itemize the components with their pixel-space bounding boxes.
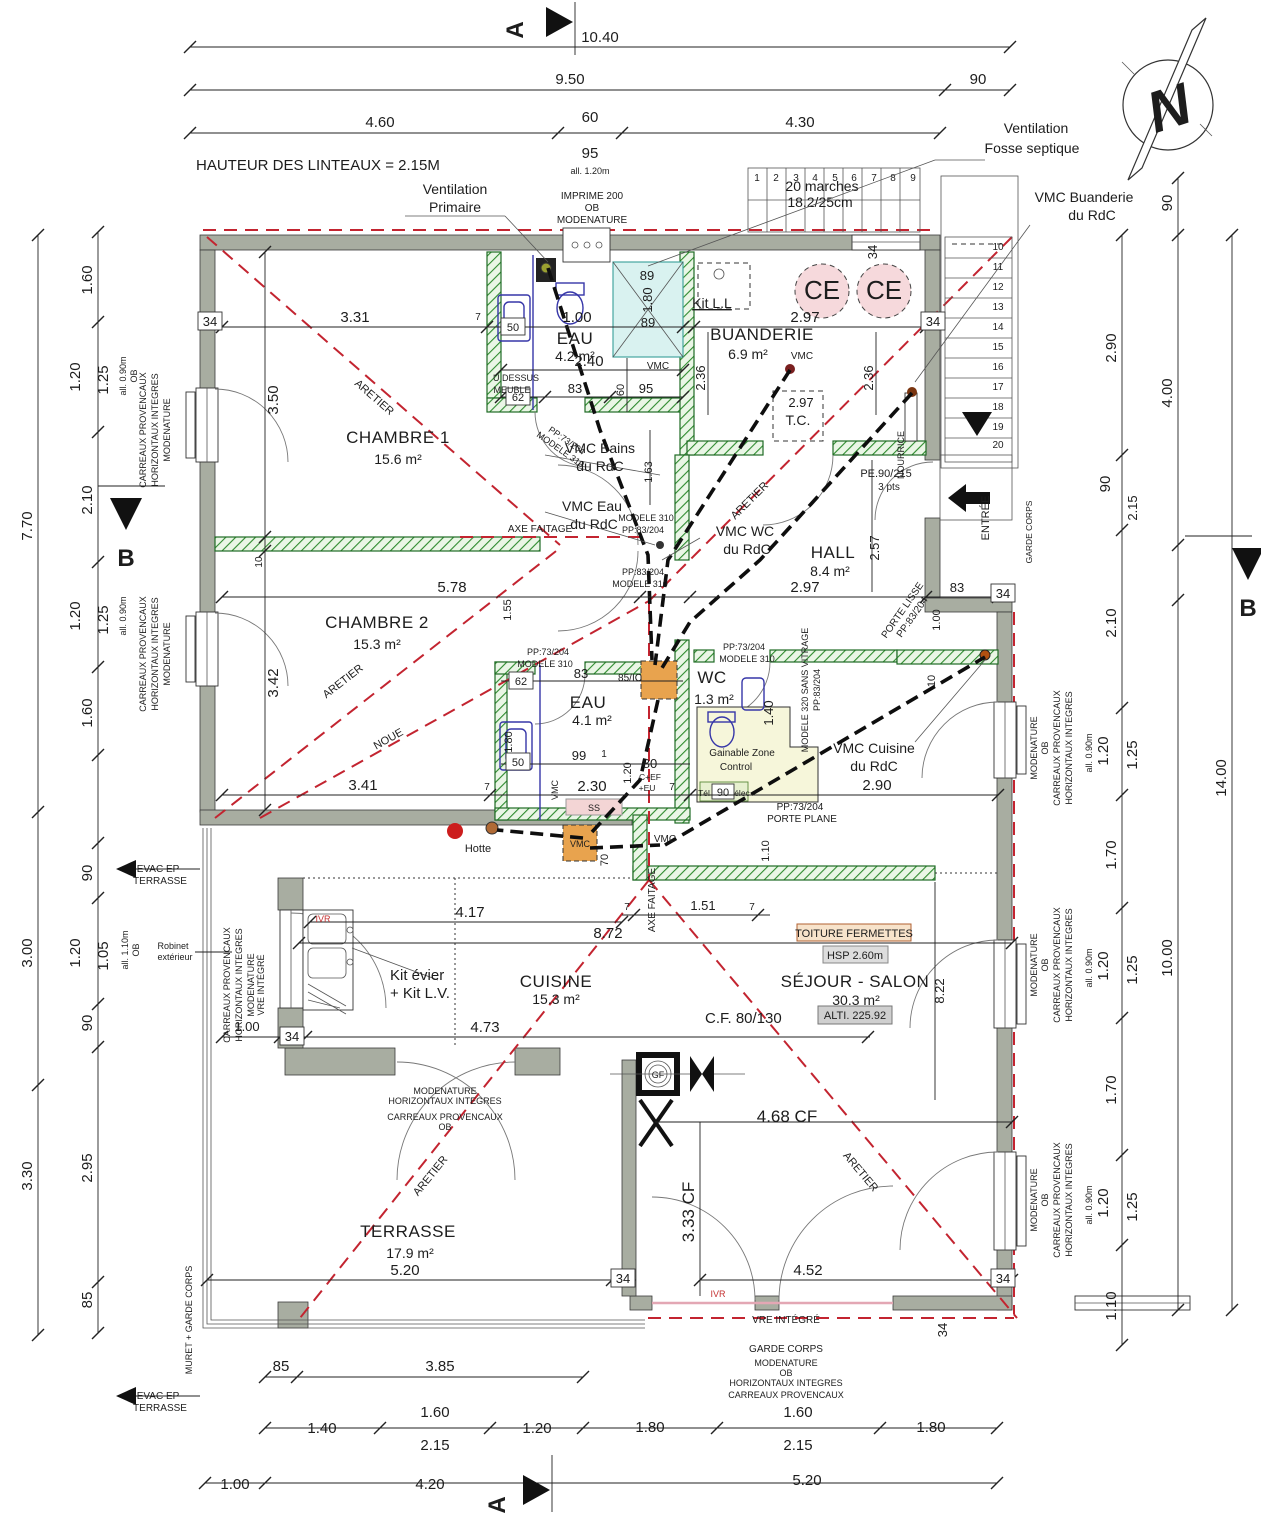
finish-note: OB [779, 1368, 792, 1378]
finish-note: CARREAUX PROVENCAUX [387, 1112, 503, 1122]
vmc-point: VMC [647, 361, 669, 372]
dim: 1.60 [79, 698, 96, 727]
porte-ref: MODELE 310 [719, 654, 775, 664]
vre-integre-label: VRE INTÉGRÉ [752, 1313, 820, 1326]
evac-ep-note: TERRASSE [133, 876, 187, 887]
section-a-top-label: A [502, 21, 529, 38]
dim: 10 [254, 556, 265, 568]
nourrice-label: NOURRICE [896, 431, 906, 479]
dim: 1.40 [761, 700, 776, 725]
sill-height: all. 1.20m [570, 166, 609, 176]
finish-note: CARREAUX PROVENCAUX [138, 372, 148, 488]
finish-note: HORIZONTAUX INTEGRES [1064, 908, 1074, 1021]
finish-note: HORIZONTAUX INTEGRES [1064, 1143, 1074, 1256]
porte-ref: PP:73/204 [723, 642, 765, 652]
dim: 2.36 [693, 365, 708, 390]
dim: 1.20 [1095, 1188, 1112, 1217]
callout-vmc-buanderie: du RdC [1068, 207, 1115, 223]
section-b-right-label: B [1239, 595, 1256, 622]
reseau-cef: C+EF [639, 772, 661, 782]
section-a-top-arrow-icon [546, 7, 573, 37]
callout-vmc-eau: du RdC [570, 516, 617, 532]
finish-note: CARREAUX PROVENCAUX [1052, 690, 1062, 806]
dim: 1.70 [1103, 1075, 1120, 1104]
dim: 2.57 [867, 535, 882, 560]
kit-lave-vaisselle: + Kit L.V. [390, 985, 450, 1002]
porte-entree-pts: 3 pts [878, 482, 900, 493]
room-terrasse-name: TERRASSE [360, 1222, 456, 1241]
conduit-fumee-ref: C.F. 80/130 [705, 1010, 782, 1027]
robinet-note: extérieur [157, 952, 192, 962]
dim: 7 [749, 902, 755, 913]
evac-ep-note: EVAC EP [137, 864, 180, 875]
dim: 1.25 [1124, 740, 1141, 769]
dim: 1.20 [622, 762, 634, 783]
callout-imprime: MODENATURE [557, 215, 628, 226]
finish-note: MODENATURE [413, 1086, 476, 1096]
dim: 1.25 [1124, 955, 1141, 984]
dim: 4.20 [415, 1476, 444, 1493]
dim: 99 [572, 748, 586, 763]
noue-label: NOUE [372, 726, 406, 752]
dim-cf: 3.33 CF [679, 1182, 698, 1242]
dim: 89 [640, 268, 654, 283]
callout-imprime: IMPRIME 200 [561, 191, 624, 202]
dim: 85/IC [618, 673, 642, 684]
wall-thickness: 34 [616, 1271, 630, 1286]
finish-note: MODENATURE [1029, 716, 1039, 779]
stair-step-14: 14 [992, 322, 1004, 333]
dim: 3.42 [265, 668, 282, 697]
sill-height: all. 1.10m [120, 930, 130, 969]
dim: 2.97 [790, 579, 819, 596]
chauffe-eau-2: CE [866, 275, 902, 305]
conduit-gf: GF [652, 1070, 665, 1080]
dim: 95 [582, 145, 599, 162]
finish-note: OB [438, 1122, 451, 1132]
callout-ventilation-primaire: Primaire [429, 199, 481, 215]
dim: 4.17 [455, 904, 484, 921]
staircase-right: 10 11 12 13 14 15 16 17 18 19 20 [941, 176, 1018, 468]
dim: 3.50 [265, 385, 282, 414]
stair-step-1: 1 [754, 173, 760, 184]
reseau-eu: +EU [639, 783, 656, 793]
sill-height: all. 0.90m [1084, 733, 1094, 772]
dim: 2.90 [862, 777, 891, 794]
toiture-fermettes-tag: TOITURE FERMETTES [795, 928, 913, 940]
room-cuisine-name: CUISINE [520, 972, 592, 991]
dim: 7.70 [19, 511, 36, 540]
dim: 1.00 [562, 309, 591, 326]
dim: 4.00 [1159, 378, 1176, 407]
dim: 83 [574, 666, 588, 681]
evac-ep-note: EVAC EP [137, 1391, 180, 1402]
dim: 60 [615, 384, 627, 396]
finish-note: HORIZONTAUX INTEGRES [150, 373, 160, 486]
ss-label: SS [588, 803, 600, 813]
dim: 95 [639, 381, 653, 396]
section-b-right-arrow-icon [1232, 548, 1261, 580]
room-eau-haut-name: EAU [557, 329, 593, 348]
callout-vmc-wc: VMC WC [716, 523, 774, 539]
wall-thickness: 34 [996, 586, 1010, 601]
vmc-point: VMC [570, 839, 591, 849]
sill-height: all. 0.90m [1084, 948, 1094, 987]
dim: 3.30 [19, 1161, 36, 1190]
dim: 89 [641, 315, 655, 330]
dim: 1.05 [95, 941, 112, 970]
room-eau-bas-area: 4.1 m² [572, 712, 612, 728]
dim: 1.20 [67, 362, 84, 391]
stair-step-12: 12 [992, 282, 1004, 293]
dim: 83 [950, 580, 964, 595]
dim: 4.52 [793, 1262, 822, 1279]
dim: 1.80 [503, 731, 515, 752]
aretier-label: ARETIER [411, 1154, 450, 1199]
dim: 1.60 [79, 265, 96, 294]
dim: 2.15 [420, 1437, 449, 1454]
dim: 70 [599, 854, 611, 866]
dim: 1.00 [931, 609, 943, 630]
finish: OB [131, 943, 141, 956]
room-hall-name: HALL [811, 543, 856, 562]
vmc-duct-box-1 [641, 661, 677, 699]
porte-ref: PP:83/204 [622, 567, 664, 577]
stair-step-13: 13 [992, 302, 1004, 313]
finish-note: MODENATURE [1029, 933, 1039, 996]
stair-step-19: 19 [992, 422, 1004, 433]
finish-note: HORIZONTAUX INTEGRES [234, 928, 244, 1041]
floor-plan-canvas: 1 2 3 4 5 6 7 8 9 20 marches 18.2/25cm 1… [0, 0, 1261, 1518]
dim: 1.10 [760, 840, 772, 861]
finish-note: CARREAUX PROVENCAUX [138, 596, 148, 712]
hsp-tag: HSP 2.60m [827, 950, 883, 962]
finish-note: MODENATURE [1029, 1168, 1039, 1231]
wall-thickness: 34 [203, 314, 217, 329]
room-tc-label: T.C. [786, 412, 811, 428]
roof-overhang-lines [203, 230, 1014, 1318]
dim: 3.00 [19, 938, 36, 967]
aretier-label: ARETIER [729, 480, 771, 522]
dim: 1.60 [783, 1404, 812, 1421]
vmc-point: VMC [654, 834, 676, 845]
dim: 1.60 [420, 1404, 449, 1421]
dim: 1 [601, 749, 607, 760]
dim-overall-width: 10.40 [581, 29, 619, 46]
dim: 83 [568, 381, 582, 396]
section-b-left-arrow-icon [110, 498, 142, 530]
vmc-point: VMC [550, 780, 560, 801]
stair-step-15: 15 [992, 342, 1004, 353]
garde-corps-stairs: GARDE CORPS [1024, 500, 1034, 563]
finish-note: HORIZONTAUX INTEGRES [1064, 691, 1074, 804]
staircase-top: 1 2 3 4 5 6 7 8 9 20 marches 18.2/25cm [748, 168, 920, 232]
dim-cf: 4.68 CF [757, 1107, 817, 1126]
dim: 80 [643, 756, 657, 771]
room-wc-name: WC [697, 668, 726, 687]
volet-ivr: IVR [315, 914, 331, 924]
volet-ivr: IVR [710, 1289, 726, 1299]
section-b-left-label: B [117, 545, 134, 572]
room-terrasse-area: 17.9 m² [386, 1245, 434, 1261]
section-a-bottom-label: A [484, 1496, 511, 1513]
dim: 10 [926, 675, 938, 687]
finish: OB [129, 369, 139, 382]
dim: 1.20 [522, 1420, 551, 1437]
door-width: 90 [717, 787, 729, 799]
dim: 2.10 [79, 485, 96, 514]
stair-step-9: 9 [910, 173, 916, 184]
callout-fosse-septique: Fosse septique [985, 140, 1080, 156]
callout-vmc-cuisine: VMC Cuisine [833, 740, 915, 756]
room-eau-bas-name: EAU [570, 693, 606, 712]
dim: 2.90 [1103, 333, 1120, 362]
entry-arrow-icon [948, 484, 966, 512]
dim: 90 [970, 71, 987, 88]
room-chambre2-area: 15.3 m² [353, 636, 401, 652]
dim: 2.95 [79, 1153, 96, 1182]
robinet-note: Robinet [157, 941, 189, 951]
axe-faitage-label: AXE FAITAGE [647, 868, 658, 933]
stair-step-17: 17 [992, 382, 1004, 393]
room-hall-area: 8.4 m² [810, 563, 850, 579]
callout-vmc-eau: VMC Eau [562, 498, 622, 514]
lintel-note: HAUTEUR DES LINTEAUX = 2.15M [196, 157, 440, 174]
dim: 1.70 [1103, 840, 1120, 869]
dim: 90 [79, 865, 96, 882]
axe-faitage-label: AXE FAITAGE [508, 524, 573, 535]
dim: 90 [1159, 195, 1176, 212]
dim: 2.15 [783, 1437, 812, 1454]
dim: 90 [1097, 476, 1114, 493]
room-chambre2-name: CHAMBRE 2 [325, 613, 429, 632]
finish-note: MODENATURE [754, 1358, 817, 1368]
dim: 7 [669, 782, 675, 793]
meuble-width: 62 [515, 676, 527, 688]
stair-step-10: 10 [992, 242, 1004, 253]
sill-height: all. 0.90m [118, 596, 128, 635]
dim: 4.73 [470, 1019, 499, 1036]
finish-note: HORIZONTAUX INTEGRES [729, 1378, 842, 1388]
dim: 1.00 [220, 1476, 249, 1493]
room-sejour-name: SÉJOUR - SALON [781, 972, 930, 991]
stair-step-2: 2 [773, 173, 779, 184]
callout-vmc-wc: du RdC [723, 541, 770, 557]
room-cuisine-area: 15.3 m² [532, 991, 580, 1007]
porte-ref: MODELE 310 [618, 513, 674, 523]
dim: 3.31 [340, 309, 369, 326]
wall-thickness: 34 [996, 1271, 1010, 1286]
callout-vmc-cuisine: du RdC [850, 758, 897, 774]
dim: 14.00 [1213, 759, 1230, 797]
dim: 1.20 [67, 601, 84, 630]
section-a-bottom-arrow-icon [523, 1475, 550, 1505]
callout-vmc-buanderie: VMC Buanderie [1035, 189, 1134, 205]
dim: 7 [624, 902, 630, 913]
finish-note: MODENATURE [162, 622, 172, 685]
dim: 5.20 [390, 1262, 419, 1279]
room-buanderie-name: BUANDERIE [710, 325, 814, 344]
aretier-label: ARETIER [840, 1150, 880, 1194]
dim: 1.20 [67, 938, 84, 967]
dim: 1.20 [1095, 736, 1112, 765]
dim: 4.30 [785, 114, 814, 131]
vr-integre-label: VRE INTÉGRÉ [256, 954, 266, 1015]
dim: 9.50 [555, 71, 584, 88]
dim: 2.97 [790, 309, 819, 326]
meuble-note: MEUBLE [493, 385, 530, 395]
porte-plane-ref: PORTE PLANE [767, 814, 837, 825]
dim: 1.20 [1095, 951, 1112, 980]
garde-corps-label: GARDE CORPS [749, 1344, 823, 1355]
dim: 2.36 [861, 365, 876, 390]
dim: 85 [79, 1292, 96, 1309]
dim: 1.10 [1103, 1291, 1120, 1320]
dim: 1.40 [307, 1420, 336, 1437]
porte-plane-ref: PP:73/204 [777, 802, 824, 813]
dim: 1.25 [1124, 1192, 1141, 1221]
stair-step-16: 16 [992, 362, 1004, 373]
hotte-point [447, 823, 463, 839]
finish-note: MODENATURE [162, 398, 172, 461]
dim: 85 [273, 1358, 290, 1375]
room-buanderie-area: 6.9 m² [728, 346, 768, 362]
fenetre-mod320-ref: PP:83/204 [812, 669, 822, 711]
finish-note: CARREAUX PROVENCAUX [728, 1390, 844, 1400]
dim: 2.30 [577, 778, 606, 795]
north-compass: N [1122, 18, 1213, 180]
entree-label: ENTRÉE [979, 496, 992, 541]
stairs-riser-note: 18.2/25cm [787, 194, 852, 210]
wall-thickness: 34 [285, 1029, 299, 1044]
stair-step-20: 20 [992, 440, 1004, 451]
finish-note: HORIZONTAUX INTEGRES [150, 597, 160, 710]
sill-height: all. 0.90m [118, 356, 128, 395]
dim: 5.78 [437, 579, 466, 596]
finish-note: OB [1040, 741, 1050, 754]
tel-label: Tél [698, 788, 710, 798]
dim: 8.22 [932, 978, 947, 1003]
evac-ep-note: TERRASSE [133, 1403, 187, 1414]
dim: 7 [475, 312, 481, 323]
stair-direction-arrow-icon [962, 412, 992, 436]
porte-ref: MODELE 310 [612, 579, 668, 589]
stairs-count-note: 20 marches [785, 178, 858, 194]
finish-note: HORIZONTAUX INTEGRES [388, 1096, 501, 1106]
finish-note: MODENATURE [246, 953, 256, 1016]
stair-step-18: 18 [992, 402, 1004, 413]
aretier-label: ARETIER [321, 662, 366, 701]
elec-label: élec [734, 788, 750, 798]
finish-note: CARREAUX PROVENCAUX [1052, 1142, 1062, 1258]
gainable-zone: Gainable Zone [709, 748, 775, 759]
dim: 1.80 [916, 1419, 945, 1436]
gainable-zone: Control [720, 762, 752, 773]
porte-ref: PP:73/204 [527, 647, 569, 657]
dim: 1.51 [690, 898, 715, 913]
room-wc-area: 1.3 m² [694, 691, 734, 707]
dim: 2.10 [1103, 608, 1120, 637]
vanity-width: 50 [507, 322, 519, 334]
fixtures [303, 228, 1012, 1303]
finish-note: CARREAUX PROVENCAUX [1052, 907, 1062, 1023]
wall-thickness: 34 [926, 314, 940, 329]
dim: 10.00 [1159, 939, 1176, 977]
callout-ventilation-primaire: Ventilation [423, 181, 488, 197]
sill-height: all. 0.90m [1084, 1185, 1094, 1224]
finish-note: CARREAUX PROVENCAUX [222, 927, 232, 1043]
finish-note: OB [1040, 958, 1050, 971]
dim: 5.20 [792, 1472, 821, 1489]
muret-note: MURET + GARDE CORPS [184, 1266, 194, 1375]
kit-lave-linge: Kit L.L [692, 295, 732, 311]
fenetre-mod320-ref: MODELE 320 SANS VITRAGE [800, 628, 810, 753]
dim: 7 [484, 782, 490, 793]
wall-thickness: 34 [935, 1323, 950, 1337]
dim: 1.80 [640, 287, 655, 312]
dim: 8.72 [593, 925, 622, 942]
floor-plan-drawing: 1 2 3 4 5 6 7 8 9 20 marches 18.2/25cm 1… [0, 0, 1261, 1518]
meuble-note: U DESSUS [493, 373, 539, 383]
dim: 2.15 [1125, 495, 1140, 520]
kit-evier: Kit évier [390, 967, 444, 984]
vmc-point: VMC [791, 351, 813, 362]
alti-tag: ALTI. 225.92 [824, 1010, 886, 1022]
dim: 3.85 [425, 1358, 454, 1375]
callout-fosse-septique: Ventilation [1004, 120, 1069, 136]
dim: 90 [79, 1015, 96, 1032]
chauffe-eau-1: CE [804, 275, 840, 305]
dim: 1.25 [95, 605, 112, 634]
dim: 1.80 [635, 1419, 664, 1436]
room-chambre1-name: CHAMBRE 1 [346, 428, 450, 447]
dim: 1.63 [643, 461, 655, 482]
callout-imprime: OB [585, 203, 600, 214]
dim: 2.40 [574, 353, 603, 370]
finish-note: OB [1040, 1193, 1050, 1206]
wall-thickness: 34 [865, 245, 880, 259]
hotte-label: Hotte [465, 843, 491, 855]
porte-ref: PP:83/204 [622, 525, 664, 535]
porte-ref: MODELE 310 [517, 659, 573, 669]
room-chambre1-area: 15.6 m² [374, 451, 422, 467]
dim: 3.41 [348, 777, 377, 794]
dim: 1.25 [95, 365, 112, 394]
dim: 60 [582, 109, 599, 126]
dim: 1.55 [502, 599, 514, 620]
vanity-width: 50 [512, 757, 524, 769]
dim: 2.97 [788, 395, 813, 410]
dim: 4.60 [365, 114, 394, 131]
